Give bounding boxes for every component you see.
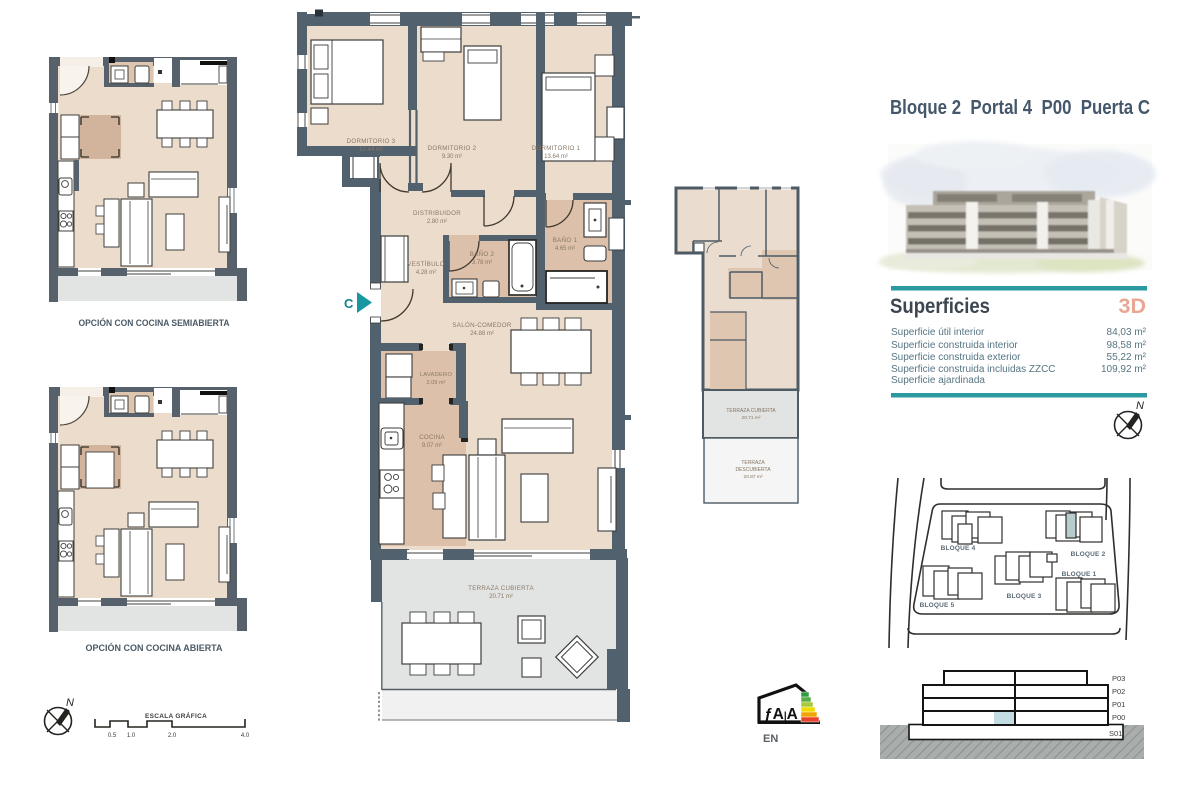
- svg-text:4.0: 4.0: [241, 733, 250, 739]
- svg-text:20.71 m²: 20.71 m²: [489, 594, 513, 600]
- svg-text:55,22 m²: 55,22 m²: [1107, 352, 1147, 363]
- svg-text:DORMITORIO 1: DORMITORIO 1: [532, 145, 581, 152]
- svg-text:Superficie construida exterior: Superficie construida exterior: [891, 352, 1021, 363]
- svg-text:DISTRIBUIDOR: DISTRIBUIDOR: [413, 210, 461, 217]
- svg-text:P02: P02: [1112, 687, 1125, 696]
- svg-text:Superficie ajardinada: Superficie ajardinada: [891, 375, 985, 386]
- svg-text:Superficie construida interior: Superficie construida interior: [891, 340, 1018, 351]
- svg-text:COCINA: COCINA: [419, 434, 445, 441]
- svg-text:2.0: 2.0: [168, 733, 177, 739]
- svg-text:2.80 m²: 2.80 m²: [427, 219, 447, 225]
- svg-text:P03: P03: [1112, 674, 1125, 683]
- svg-text:20.87 m²: 20.87 m²: [744, 474, 763, 480]
- svg-text:S01: S01: [1109, 729, 1122, 738]
- svg-text:Superficies: Superficies: [890, 295, 990, 318]
- svg-text:BLOQUE 5: BLOQUE 5: [920, 602, 955, 609]
- svg-text:ESCALA GRÁFICA: ESCALA GRÁFICA: [145, 711, 207, 720]
- svg-text:BLOQUE 2: BLOQUE 2: [1071, 551, 1106, 558]
- svg-text:84,03 m²: 84,03 m²: [1107, 327, 1147, 338]
- svg-text:TERRAZA: TERRAZA: [741, 460, 765, 466]
- svg-text:SALÓN-COMEDOR: SALÓN-COMEDOR: [452, 322, 511, 329]
- svg-text:3.78 m²: 3.78 m²: [472, 260, 492, 266]
- svg-text:OPCIÓN CON COCINA ABIERTA: OPCIÓN CON COCINA ABIERTA: [86, 642, 223, 653]
- svg-text:TERRAZA CUBIERTA: TERRAZA CUBIERTA: [726, 408, 776, 414]
- svg-text:TERRAZA CUBIERTA: TERRAZA CUBIERTA: [468, 585, 534, 592]
- svg-text:24.88 m²: 24.88 m²: [470, 331, 494, 337]
- svg-text:9.30 m²: 9.30 m²: [442, 154, 462, 160]
- svg-text:98,58 m²: 98,58 m²: [1107, 340, 1147, 351]
- svg-text:4.28 m²: 4.28 m²: [416, 270, 436, 276]
- svg-text:DORMITORIO 3: DORMITORIO 3: [347, 138, 396, 145]
- svg-text:Bloque 2 Portal 4 P00 Puert: Bloque 2 Portal 4 P00 Puerta C: [890, 96, 1150, 119]
- svg-text:P00: P00: [1112, 713, 1125, 722]
- svg-text:DESCUBIERTA: DESCUBIERTA: [735, 467, 771, 473]
- svg-text:2.09 m²: 2.09 m²: [427, 380, 446, 386]
- svg-text:P01: P01: [1112, 700, 1125, 709]
- svg-text:9.07 m²: 9.07 m²: [422, 443, 442, 449]
- svg-text:EN: EN: [763, 733, 778, 745]
- svg-text:C: C: [344, 296, 354, 311]
- svg-text:1.0: 1.0: [127, 733, 136, 739]
- svg-text:BLOQUE 3: BLOQUE 3: [1007, 593, 1042, 600]
- svg-text:DORMITORIO 2: DORMITORIO 2: [428, 145, 477, 152]
- svg-text:OPCIÓN CON COCINA SEMIABIERTA: OPCIÓN CON COCINA SEMIABIERTA: [79, 317, 230, 328]
- svg-text:4.65 m²: 4.65 m²: [555, 246, 575, 252]
- svg-text:Superficie útil interior: Superficie útil interior: [891, 327, 985, 338]
- svg-text:BAÑO 2: BAÑO 2: [470, 251, 495, 258]
- svg-text:BAÑO 1: BAÑO 1: [553, 237, 578, 244]
- svg-text:BLOQUE 4: BLOQUE 4: [941, 545, 976, 552]
- svg-text:VESTÍBULO: VESTÍBULO: [407, 261, 444, 268]
- svg-text:Superficie construida incluida: Superficie construida incluidas ZZCC: [891, 364, 1056, 375]
- svg-text:0.5: 0.5: [108, 733, 117, 739]
- svg-text:ƒA|A: ƒA|A: [764, 706, 798, 723]
- svg-text:3D: 3D: [1119, 294, 1146, 318]
- svg-text:N: N: [1136, 400, 1144, 412]
- svg-text:BLOQUE 1: BLOQUE 1: [1062, 571, 1097, 578]
- svg-text:109,92 m²: 109,92 m²: [1101, 364, 1147, 375]
- svg-text:LAVADERO: LAVADERO: [420, 372, 453, 378]
- svg-text:N: N: [66, 697, 74, 709]
- svg-text:20.71 m²: 20.71 m²: [742, 415, 761, 421]
- svg-text:13.64 m²: 13.64 m²: [544, 154, 568, 160]
- svg-text:10.44 m²: 10.44 m²: [359, 147, 383, 153]
